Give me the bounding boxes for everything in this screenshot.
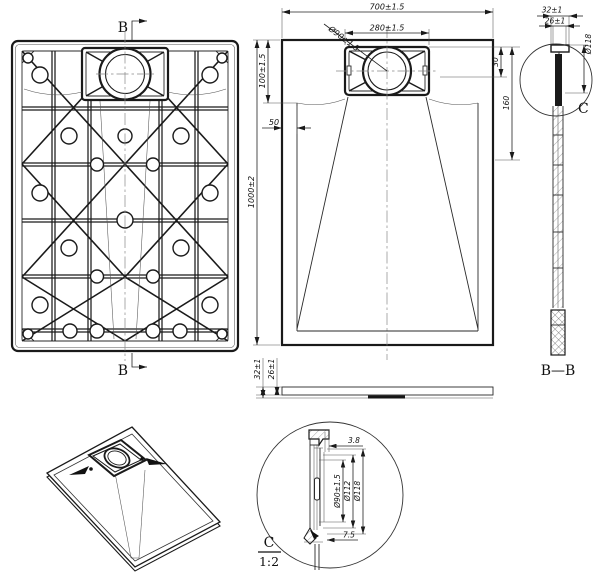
isometric-view xyxy=(25,418,240,573)
section-thickness-dims: 32±1 26±1 xyxy=(537,6,583,47)
drawing-canvas: B B xyxy=(0,0,600,577)
svg-text:7.5: 7.5 xyxy=(343,531,355,540)
detail-title: C xyxy=(264,535,275,551)
dim-profile-body: 26±1 xyxy=(267,359,276,380)
svg-text:Ø112: Ø112 xyxy=(343,481,352,502)
section-marker-top: B xyxy=(118,20,128,36)
detail-diameter-dims: Ø90±1.5 Ø112 Ø118 xyxy=(319,449,366,534)
detail-c-view: 3.8 Ø90±1.5 Ø112 Ø118 7.5 C 1:2 xyxy=(253,418,413,577)
svg-text:1000±2: 1000±2 xyxy=(247,176,256,208)
svg-text:280±1.5: 280±1.5 xyxy=(370,24,405,33)
section-cut-top: B xyxy=(118,20,147,40)
detail-foot-dim: 7.5 xyxy=(327,531,358,541)
svg-text:100±1.5: 100±1.5 xyxy=(258,54,267,89)
section-body xyxy=(551,45,569,355)
detail-boundary-circle xyxy=(257,422,403,568)
svg-text:Ø90±1.5: Ø90±1.5 xyxy=(333,474,342,509)
plan-view: Ø90±1.5 700±1.5 280±1.5 1000±2 100±1.5 xyxy=(248,0,528,402)
svg-text:700±1.5: 700±1.5 xyxy=(370,3,405,12)
detail-marker: C xyxy=(578,101,589,117)
detail-scale: 1:2 xyxy=(259,554,279,569)
svg-text:50: 50 xyxy=(269,118,279,127)
side-profile: 32±1 26±1 xyxy=(253,358,493,399)
section-view-title: B—B xyxy=(541,363,576,379)
dim-drain-zone-length: 100±1.5 xyxy=(258,40,297,103)
svg-text:26±1: 26±1 xyxy=(545,17,566,26)
svg-text:32±1: 32±1 xyxy=(542,6,563,15)
section-marker-bottom: B xyxy=(118,363,128,379)
detail-lip-dim: 3.8 xyxy=(325,430,363,452)
basin-lines xyxy=(297,97,478,331)
dim-drain-diameter: Ø90±1.5 xyxy=(326,23,361,53)
iso-tray xyxy=(47,427,220,571)
svg-text:Ø118: Ø118 xyxy=(353,481,362,502)
detail-view-label: C 1:2 xyxy=(258,535,281,569)
dim-profile-total: 32±1 xyxy=(253,359,262,380)
section-bb-view: 32±1 26±1 Ø118 C B— xyxy=(495,0,600,380)
dim-side-border: 50 xyxy=(262,106,311,134)
svg-text:Ø118: Ø118 xyxy=(584,34,593,55)
section-cut-bottom: B xyxy=(118,353,147,379)
bottom-view: B B xyxy=(8,3,248,395)
svg-text:3.8: 3.8 xyxy=(348,436,360,445)
